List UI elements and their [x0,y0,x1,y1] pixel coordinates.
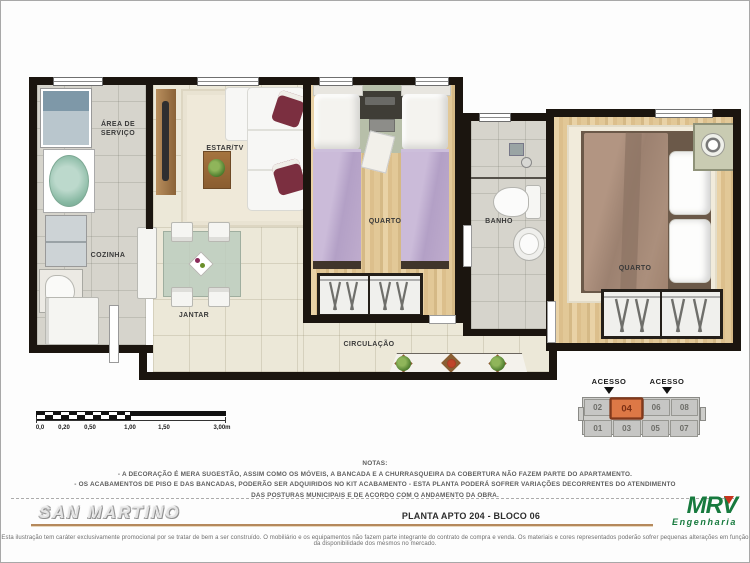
wardrobe-hanging-clothes-icon [320,276,420,314]
scale-bar-solid [130,411,226,416]
desk [357,91,403,119]
scale-label: 1,50 [158,425,170,431]
shower-head [521,157,532,168]
dining-chair [171,222,193,242]
unit-01: 01 [584,420,612,437]
dining-chair [171,287,193,307]
shower-divider [471,177,546,179]
wall [139,372,557,380]
unit-03: 03 [613,420,641,437]
notes-title: NOTAS: [1,459,749,470]
centerpiece-leaf [200,263,205,268]
room-label-jantar: JANTAR [179,312,209,321]
bedroom2-door [547,301,556,343]
desk-tv [365,97,395,105]
dining-chair [208,222,230,242]
acesso-arrow-icon [604,387,614,394]
table-lamp [701,133,725,157]
acesso-arrow-icon [662,387,672,394]
wall [733,109,741,351]
room-label-quarto2: QUARTO [619,265,652,274]
window [655,109,713,118]
bathroom-sink [513,227,545,261]
room-label-banho: BANHO [485,218,513,227]
wardrobe [601,289,723,339]
wall [29,77,37,353]
key-plan: ACESSO ACESSO 02 04 06 08 01 03 05 07 [576,377,741,441]
scale-bar-tick [225,417,226,423]
twin-bed-pillows [314,94,360,150]
mrv-v-accent-icon [724,496,734,504]
window [53,77,103,86]
twin-bed-footboard [313,261,361,269]
twin-bed-pillows [402,94,448,150]
wall [303,77,311,323]
mrv-logo: MRV Engenharia [645,495,737,527]
room-label-quarto1: QUARTO [369,218,402,227]
window [197,77,259,86]
room-label-line: ÁREA DE [101,121,135,128]
room-label-line: SERVIÇO [101,130,135,137]
footer-divider [11,498,739,499]
key-plan-building: 02 04 06 08 01 03 05 07 [582,397,700,435]
project-name: SAN MARTINO [39,503,181,523]
entrance-door [109,305,119,363]
laundry-tub-basin [49,155,89,207]
scale-bar-baseline [36,420,226,421]
notes-line: - OS ACABAMENTOS DE PISO E DAS BANCADAS,… [1,480,749,491]
console-flower [447,359,456,368]
acesso-label-1: ACESSO [592,377,627,386]
scale-label: 1,00 [124,425,136,431]
unit-06: 06 [643,399,670,416]
centerpiece-flower [195,258,200,263]
room-label-estar: ESTAR/TV [206,145,243,154]
scale-label: 0,0 [36,425,44,431]
twin-bed-blanket [401,149,449,266]
acesso-label-2: ACESSO [650,377,685,386]
plan-title: PLANTA APTO 204 - BLOCO 06 [331,511,611,521]
wardrobe [317,273,423,317]
window [415,77,449,86]
twin-bed-footboard [401,261,449,269]
wall [29,345,153,353]
unit-08: 08 [671,399,698,416]
dining-chair [208,287,230,307]
room-label-cozinha: COZINHA [91,252,126,261]
wall [463,329,553,336]
scale-label: 0,20 [58,425,70,431]
wall [455,77,463,323]
key-plan-row-top: 02 04 06 08 [584,399,698,418]
key-plan-tab [700,407,706,421]
plant [208,159,225,177]
desk-console [369,119,395,132]
wall [549,343,557,380]
key-plan-tab [578,407,584,421]
wardrobe-hanging-clothes-icon [604,292,720,336]
refrigerator [45,297,99,345]
mrv-brand-name: MRV [687,495,737,517]
window [319,77,353,86]
unit-04-highlighted: 04 [610,397,645,419]
scale-label: 3,00m [213,425,230,431]
notes-block: NOTAS: - A DECORAÇÃO É MERA SUGESTÃO, AS… [1,459,749,501]
toilet-bowl [493,187,529,217]
key-plan-row-bottom: 01 03 05 07 [584,420,698,437]
footer-rule [31,524,653,527]
unit-05: 05 [642,420,670,437]
washing-machine [41,89,91,147]
wall [146,85,153,229]
double-bed-pillow [669,219,711,283]
bedroom1-door [429,315,456,324]
room-label-circulacao: CIRCULAÇÃO [343,341,394,350]
scale-bar: 0,0 0,20 0,50 1,00 1,50 3,00m [36,409,228,435]
bathroom-door [463,225,472,267]
scale-bar-tick [36,417,37,423]
disclaimer-text: Esta ilustração tem caráter exclusivamen… [1,535,749,547]
shower-shelf [509,143,524,156]
window [479,113,511,122]
scale-label: 0,50 [84,425,96,431]
notes-line: DAS POSTURAS MUNICIPAIS E DE ACORDO COM … [1,491,749,502]
tv-screen [162,101,169,181]
room-label-area-servico: ÁREA DE SERVIÇO [101,121,135,139]
unit-02: 02 [584,399,611,416]
notes-line: - A DECORAÇÃO É MERA SUGESTÃO, ASSIM COM… [1,470,749,481]
kitchen-peninsula-counter [137,227,157,299]
unit-07: 07 [670,420,698,437]
wall [546,343,741,351]
kitchen-cabinet-drawers [45,215,87,267]
twin-bed-blanket [313,149,361,266]
floor-plan-sheet: ÁREA DE SERVIÇO COZINHA ESTAR/TV JANTAR … [0,0,750,563]
plant [396,356,411,371]
plant [490,356,505,371]
